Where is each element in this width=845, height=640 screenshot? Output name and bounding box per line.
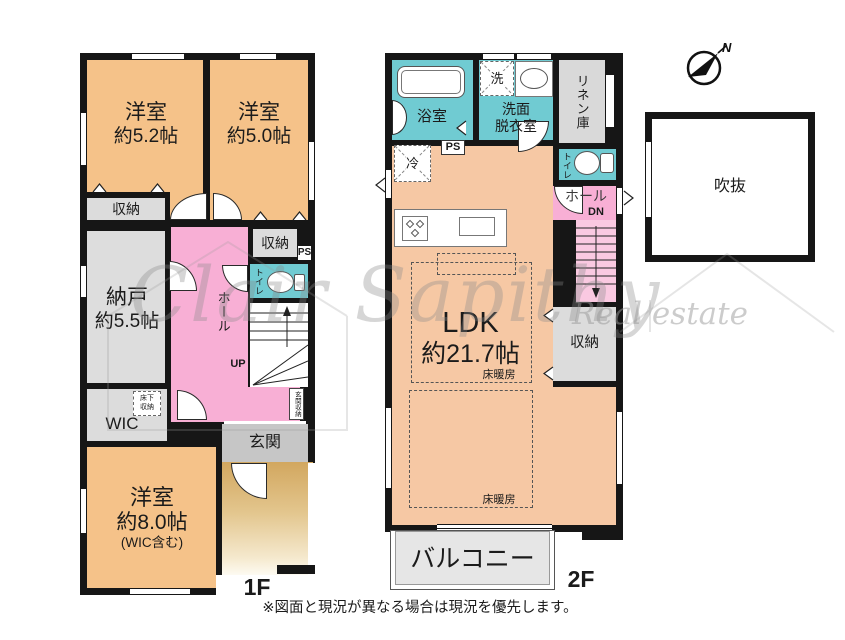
folding-marker-closet-top-2 [150, 183, 165, 193]
underfloor-storage-label: 床下収納 [139, 395, 155, 412]
closet-top-label: 収納 [87, 198, 165, 220]
wic-text: WIC [105, 414, 138, 434]
disclaimer-text: ※図面と現況が異なる場合は現況を優先します。 [262, 600, 577, 617]
window-marker-right-2f [623, 190, 634, 206]
room-8-0-size: 約8.0帖 [116, 511, 187, 536]
nando-size: 約5.5帖 [95, 311, 159, 333]
window-2f-left-1 [385, 170, 392, 198]
ldk-label: LDK 約21.7帖 [398, 306, 543, 370]
washer-label: 洗 [490, 71, 503, 86]
closet-2f-text: 収納 [570, 335, 599, 352]
floor-plan-canvas: PS 玄関収納 床下収納 [0, 0, 845, 640]
floor2-text: 2F [568, 566, 595, 593]
window-void-left [645, 142, 652, 217]
stairs-1f-treads [250, 303, 308, 387]
stove-icon [402, 216, 428, 241]
room-5-0-name: 洋室 [238, 101, 280, 126]
basin-bowl-icon [520, 68, 548, 89]
linen-label: リネン庫 [573, 68, 591, 136]
ps-box-1f: PS [297, 245, 312, 261]
stair-storage-label: 玄関収納 [293, 391, 301, 417]
stairs-2f-treads [576, 220, 616, 302]
window-2f-top-1 [483, 53, 514, 60]
room-8-0-name: 洋室 [130, 485, 174, 511]
hall-1f-label: ホール [214, 286, 232, 338]
kitchen-sink-icon [459, 217, 495, 236]
ldk-size: 約21.7帖 [421, 340, 520, 370]
room-5-0-size: 約5.0帖 [227, 126, 291, 148]
genkan-label: 玄関 [222, 424, 308, 462]
burner-1 [406, 220, 414, 228]
window-1f-left-3 [80, 489, 87, 533]
sliding-door-center-line [437, 528, 552, 529]
hall-2f-label: ホール [558, 188, 614, 205]
window-2f-left-2 [385, 408, 392, 488]
window-marker-left-2f [375, 177, 386, 193]
stair-storage-box: 玄関収納 [289, 388, 304, 420]
room-8-0-note: (WIC含む) [121, 535, 183, 551]
up-label: UP [226, 357, 250, 371]
ps-box-2f: PS [441, 140, 465, 155]
balcony-text: バルコニー [410, 545, 535, 575]
window-1f-left-1 [80, 113, 87, 165]
folding-marker-closet-mid-1 [253, 211, 268, 221]
stairs-2f-box [576, 220, 616, 302]
dn-text: DN [588, 206, 604, 219]
washer-box: 洗 [480, 61, 514, 96]
room-8-0-label: 洋室 約8.0帖 (WIC含む) [95, 480, 209, 556]
room-5-0-label: 洋室 約5.0帖 [212, 98, 306, 152]
wic-label: WIC [96, 413, 148, 435]
genkan-text: 玄関 [249, 434, 281, 453]
ldk-fill-right [553, 387, 616, 525]
window-1f-bottom [130, 588, 190, 595]
floor2-label: 2F [558, 568, 604, 592]
linen-text: リネン庫 [574, 74, 589, 130]
bath-text: 浴室 [417, 108, 447, 126]
closet-mid-label: 収納 [253, 229, 297, 257]
disclaimer-note: ※図面と現況が異なる場合は現況を優先します。 [240, 598, 600, 620]
toilet-tank-2f-icon [600, 153, 614, 173]
nando-name: 納戸 [106, 286, 148, 311]
hall-1f-text: ホール [215, 291, 230, 333]
fridge-box: 冷 [394, 145, 431, 182]
bathtub-icon [397, 66, 465, 98]
toilet-bowl-1f-icon [267, 271, 294, 293]
ps-2f-text: PS [446, 141, 461, 154]
stairs-2f-dn-arrow [592, 288, 600, 298]
balcony-label: バルコニー [391, 531, 554, 589]
closet-2f-label: 収納 [553, 307, 616, 381]
floor-heating-2-text: 床暖房 [483, 494, 516, 507]
window-linen [605, 75, 615, 127]
window-1f-right [308, 142, 315, 200]
burner-3 [411, 229, 419, 237]
balcony: バルコニー [390, 530, 555, 590]
floor-heating-1-label: 床暖房 [468, 368, 530, 382]
washroom-line2: 脱衣室 [495, 118, 537, 135]
closet-mid-text: 収納 [261, 235, 289, 252]
window-2f-right-2 [616, 412, 623, 484]
burner-2 [416, 220, 424, 228]
room-5-2-name: 洋室 [125, 101, 167, 126]
floor-heating-1-text: 床暖房 [483, 369, 516, 382]
hall-2f-text: ホール [565, 188, 607, 205]
porch-corner-wall [277, 565, 315, 574]
window-1f-left-2 [80, 266, 87, 297]
floor-heating-2-label: 床暖房 [468, 493, 530, 507]
bathtub-inner-line [401, 70, 461, 94]
bath-label: 浴室 [406, 107, 458, 127]
washroom-line1: 洗面 [502, 101, 530, 118]
toilet-bowl-2f-icon [574, 151, 600, 175]
folding-marker-closet-top-1 [92, 183, 107, 193]
toilet-2f-text: トイレ [561, 152, 572, 179]
room-5-2-size: 約5.2帖 [114, 126, 178, 148]
room-5-2-label: 洋室 約5.2帖 [92, 98, 200, 152]
floor2-step-wall [582, 530, 623, 540]
stairs-1f-up-arrow [283, 306, 291, 316]
closet-top-text: 収納 [112, 201, 140, 218]
toilet-tank-1f-icon [294, 274, 305, 291]
window-1f-top-left [132, 53, 184, 60]
toilet-1f-text: トイレ [253, 268, 264, 295]
stairs-1f-box [250, 303, 308, 387]
up-text: UP [230, 358, 245, 371]
folding-marker-closet-mid-2 [292, 211, 307, 221]
floor-heating-zone-2 [409, 390, 533, 508]
fridge-label: 冷 [406, 156, 419, 171]
compass-icon: N [678, 38, 738, 94]
window-1f-top-right [240, 53, 276, 60]
ldk-name: LDK [442, 306, 498, 340]
nando-label: 納戸 約5.5帖 [90, 283, 164, 337]
compass-north-label: N [722, 40, 732, 55]
void-label: 吹抜 [698, 177, 762, 197]
floor1-label: 1F [234, 576, 280, 600]
washroom-label: 洗面 脱衣室 [479, 99, 553, 137]
ps-1f-label: PS [298, 247, 311, 259]
dn-label: DN [582, 206, 610, 219]
window-2f-top-2 [517, 53, 551, 60]
void-text: 吹抜 [714, 178, 746, 197]
toilet-1f-label: トイレ [252, 266, 265, 297]
window-2f-right-1 [616, 188, 623, 214]
toilet-2f-label: トイレ [560, 150, 573, 180]
